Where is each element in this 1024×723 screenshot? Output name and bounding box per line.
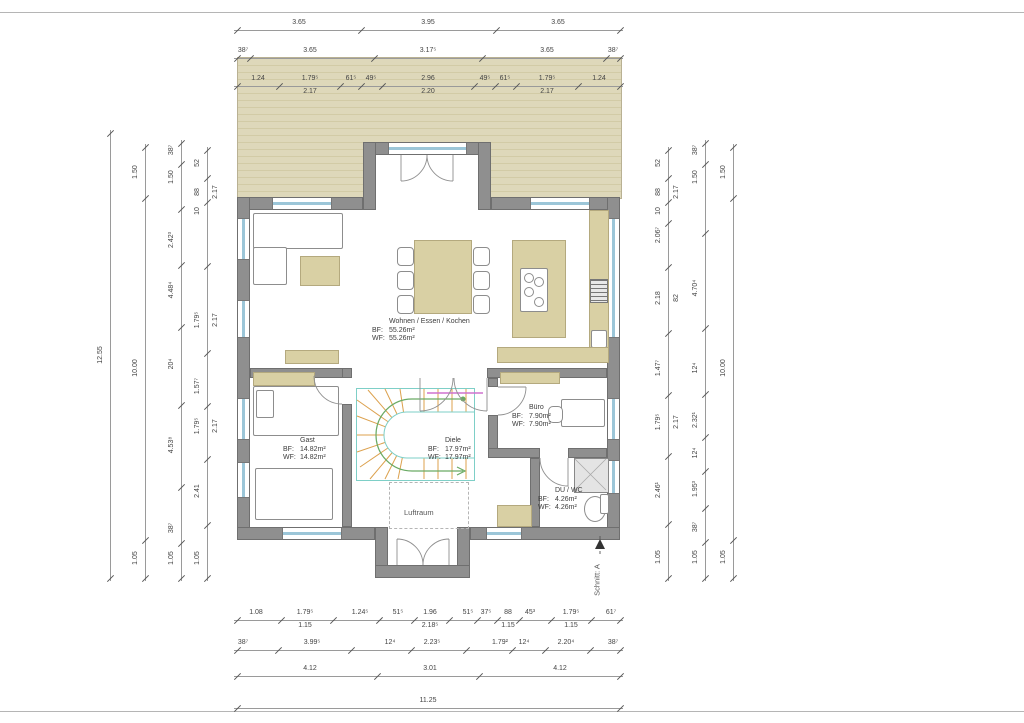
dim-line bbox=[234, 620, 623, 621]
dim-line bbox=[234, 708, 623, 709]
dim-label: 10 bbox=[655, 207, 663, 215]
dim-label: 51⁵ bbox=[463, 609, 474, 617]
dim-label: 45³ bbox=[525, 609, 535, 617]
dimension-chains: 3.653.953.6538⁷3.653.17⁵3.6538⁷1.241.79⁵… bbox=[0, 0, 1024, 723]
dim-label: 61⁷ bbox=[606, 609, 616, 617]
dim-sum-label: 2.20 bbox=[421, 88, 435, 96]
dim-label: 38⁷ bbox=[608, 47, 618, 55]
dim-sum-label: 1.15 bbox=[501, 622, 515, 630]
dim-label: 4.48⁴ bbox=[168, 282, 176, 299]
dim-label: 1.50 bbox=[692, 170, 700, 184]
dim-label: 2.42³ bbox=[168, 232, 176, 248]
dim-label: 2.32¹ bbox=[692, 412, 700, 428]
dim-label: 1.50 bbox=[132, 165, 140, 179]
dim-label: 1.79⁵ bbox=[194, 312, 202, 329]
dim-label: 1.24 bbox=[251, 75, 265, 83]
dim-label: 4.12 bbox=[553, 665, 567, 673]
dim-label: 1.08 bbox=[249, 609, 263, 617]
dim-label: 1.79² bbox=[492, 639, 508, 647]
dim-label: 10.00 bbox=[132, 359, 140, 377]
dim-label: 12⁴ bbox=[692, 448, 700, 459]
dim-label: 38⁷ bbox=[168, 523, 176, 533]
dim-label: 4.70⁴ bbox=[692, 280, 700, 297]
dim-line bbox=[110, 130, 111, 581]
dim-label: 1.79⁵ bbox=[194, 418, 202, 435]
dim-label: 2.41 bbox=[194, 484, 202, 498]
dim-label: 2.46¹ bbox=[655, 482, 663, 498]
dim-label: 3.65 bbox=[292, 19, 306, 27]
dim-label: 1.24 bbox=[592, 75, 606, 83]
dim-label: 1.05 bbox=[692, 550, 700, 564]
dim-label: 3.65 bbox=[303, 47, 317, 55]
dim-line bbox=[705, 140, 706, 581]
dim-label: 11.25 bbox=[420, 697, 437, 705]
dim-label: 1.05 bbox=[194, 551, 202, 565]
dim-line bbox=[207, 147, 208, 581]
dim-label: 2.18 bbox=[655, 291, 663, 305]
dim-label: 1.05 bbox=[132, 551, 140, 565]
dim-sum-label: 1.15 bbox=[298, 622, 312, 630]
dim-label: 12⁴ bbox=[385, 639, 396, 647]
dim-label: 51⁵ bbox=[393, 609, 404, 617]
dim-label: 61⁵ bbox=[500, 75, 511, 83]
dim-label: 2.96 bbox=[421, 75, 435, 83]
dim-label: 1.79⁵ bbox=[302, 75, 319, 83]
dim-line bbox=[234, 86, 623, 87]
dim-sum-label: 2.17 bbox=[212, 313, 220, 327]
dim-line bbox=[181, 140, 182, 581]
dim-label: 1.57⁷ bbox=[194, 378, 202, 394]
dim-label: 49⁵ bbox=[366, 75, 377, 83]
dim-label: 10 bbox=[194, 207, 202, 215]
dim-label: 38⁷ bbox=[238, 639, 248, 647]
dim-label: 88 bbox=[504, 609, 512, 617]
dim-label: 1.50 bbox=[168, 170, 176, 184]
dim-label: 12⁴ bbox=[692, 363, 700, 374]
dim-line bbox=[668, 147, 669, 581]
dim-label: 1.79⁵ bbox=[539, 75, 556, 83]
dim-label: 20⁴ bbox=[168, 359, 176, 370]
dim-label: 1.96 bbox=[423, 609, 437, 617]
dim-label: 1.05 bbox=[168, 551, 176, 565]
dim-label: 12.55 bbox=[97, 346, 105, 364]
dim-line bbox=[234, 30, 623, 31]
dim-label: 3.65 bbox=[540, 47, 554, 55]
dim-label: 1.79⁵ bbox=[563, 609, 580, 617]
dim-label: 1.95³ bbox=[692, 481, 700, 497]
dim-sum-label: 2.17 bbox=[212, 185, 220, 199]
dim-label: 1.79⁵ bbox=[655, 414, 663, 431]
dim-label: 1.47⁷ bbox=[655, 360, 663, 376]
dim-sum-label: 2.17 bbox=[212, 419, 220, 433]
dim-sum-label: 2.17 bbox=[540, 88, 554, 96]
dim-label: 52 bbox=[194, 159, 202, 167]
dim-label: 3.99⁵ bbox=[304, 639, 321, 647]
dim-label: 38⁷ bbox=[608, 639, 618, 647]
dim-label: 1.50 bbox=[720, 165, 728, 179]
dim-sum-label: 2.18⁵ bbox=[422, 622, 439, 630]
dim-label: 1.79⁵ bbox=[297, 609, 314, 617]
dim-label: 4.53⁸ bbox=[168, 437, 176, 454]
dim-line bbox=[234, 58, 623, 59]
dim-label: 38⁷ bbox=[692, 145, 700, 155]
dim-label: 4.12 bbox=[303, 665, 317, 673]
dim-label: 38⁷ bbox=[168, 145, 176, 155]
dim-sum-label: 82 bbox=[673, 294, 681, 302]
dim-sum-label: 2.17 bbox=[673, 415, 681, 429]
dim-label: 3.01 bbox=[423, 665, 437, 673]
dim-sum-label: 2.17 bbox=[673, 185, 681, 199]
dim-label: 2.23⁵ bbox=[424, 639, 441, 647]
dim-label: 2.06⁷ bbox=[655, 227, 663, 243]
dim-line bbox=[234, 650, 623, 651]
dim-label: 1.24⁵ bbox=[352, 609, 369, 617]
dim-label: 38⁷ bbox=[238, 47, 248, 55]
dim-line bbox=[145, 144, 146, 581]
dim-label: 38⁷ bbox=[692, 522, 700, 532]
dim-line bbox=[733, 144, 734, 581]
dim-label: 49⁵ bbox=[480, 75, 491, 83]
dim-label: 52 bbox=[655, 159, 663, 167]
dim-label: 88 bbox=[194, 188, 202, 196]
dim-label: 1.05 bbox=[720, 550, 728, 564]
dim-label: 88 bbox=[655, 188, 663, 196]
floor-plan-sheet: Wohnen / Essen / Kochen BF:55.26m² WF:55… bbox=[0, 0, 1024, 723]
dim-label: 3.65 bbox=[551, 19, 565, 27]
dim-label: 12⁴ bbox=[519, 639, 530, 647]
dim-label: 3.17⁵ bbox=[420, 47, 437, 55]
dim-label: 10.00 bbox=[720, 359, 728, 377]
dim-sum-label: 1.15 bbox=[564, 622, 578, 630]
dim-label: 2.20⁴ bbox=[558, 639, 575, 647]
dim-sum-label: 2.17 bbox=[303, 88, 317, 96]
dim-label: 37⁵ bbox=[481, 609, 492, 617]
dim-label: 61⁵ bbox=[346, 75, 357, 83]
dim-line bbox=[234, 676, 623, 677]
dim-label: 3.95 bbox=[421, 19, 435, 27]
dim-label: 1.05 bbox=[655, 550, 663, 564]
